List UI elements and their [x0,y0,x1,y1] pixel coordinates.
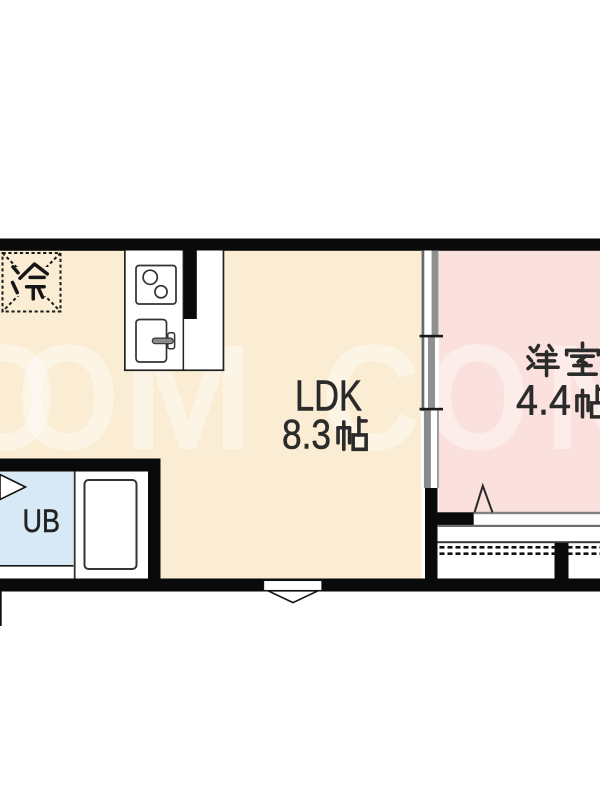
svg-text:O: O [427,313,530,481]
svg-text:4.4: 4.4 [516,377,571,425]
svg-text:O: O [17,313,120,481]
svg-text:8.3: 8.3 [282,411,331,458]
svg-text:UB: UB [23,503,61,539]
